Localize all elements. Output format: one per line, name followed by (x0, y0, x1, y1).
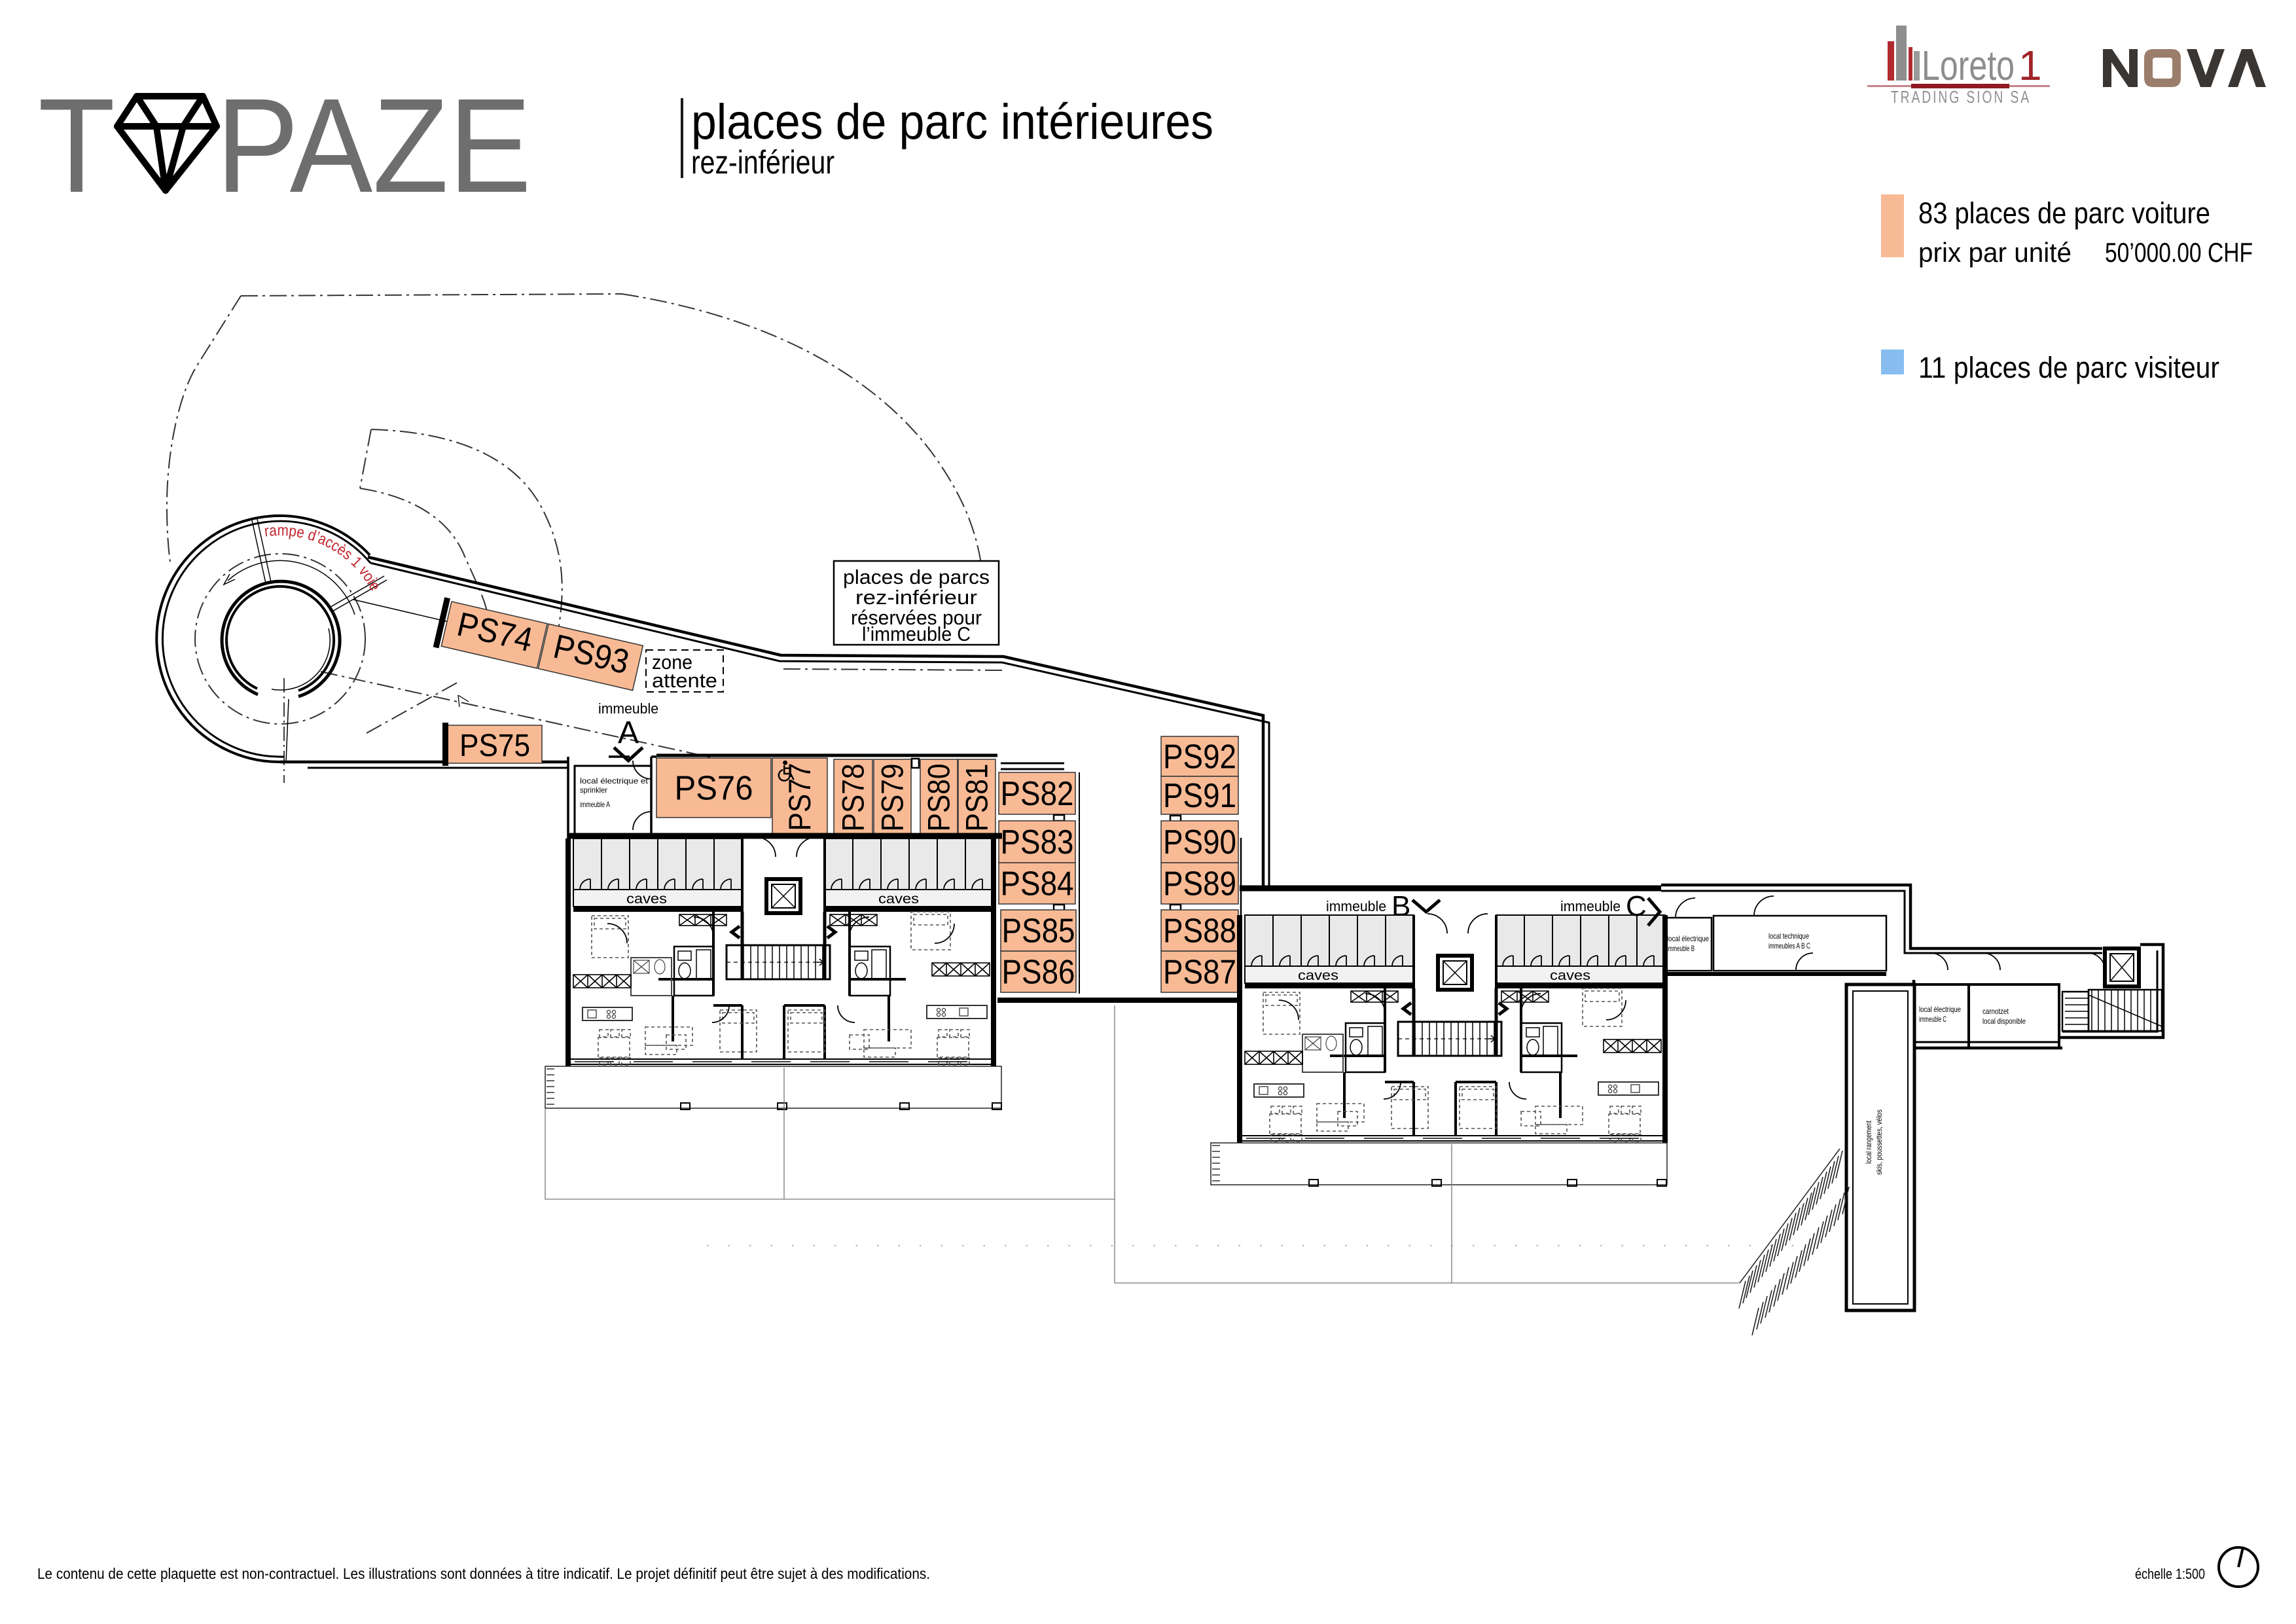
svg-text:échelle 1:500: échelle 1:500 (2135, 1566, 2205, 1582)
svg-text:prix par unité: prix par unité (1918, 237, 2072, 268)
svg-text:immeuble A: immeuble A (580, 800, 610, 809)
svg-text:B: B (1391, 890, 1410, 922)
svg-text:local technique: local technique (1768, 931, 1809, 941)
svg-text:caves: caves (626, 892, 667, 907)
svg-text:immeuble: immeuble (1560, 898, 1621, 914)
svg-text:skis, poussettes, vélos: skis, poussettes, vélos (1874, 1110, 1884, 1175)
svg-text:PS90: PS90 (1163, 823, 1236, 861)
svg-text:places de parc intérieures: places de parc intérieures (691, 94, 1213, 150)
svg-text:PS82: PS82 (1001, 775, 1074, 813)
svg-text:l’immeuble C: l’immeuble C (862, 623, 971, 645)
svg-text:local électrique et: local électrique et (580, 776, 649, 785)
svg-text:PS80: PS80 (922, 764, 956, 832)
svg-text:immeubles A B C: immeubles A B C (1768, 941, 1810, 950)
svg-text:local électrique: local électrique (1667, 934, 1709, 943)
svg-text:PS84: PS84 (1001, 865, 1074, 903)
svg-text:PS81: PS81 (960, 764, 994, 832)
svg-text:local rangement: local rangement (1864, 1120, 1873, 1164)
svg-text:83 places de parc voiture: 83 places de parc voiture (1918, 196, 2210, 230)
svg-text:PS91: PS91 (1163, 777, 1236, 815)
svg-text:PAZE: PAZE (216, 71, 531, 221)
svg-text:caves: caves (1298, 968, 1338, 983)
svg-text:immeuble: immeuble (1326, 898, 1386, 914)
svg-text:rez-inférieur: rez-inférieur (691, 144, 834, 181)
svg-text:C: C (1626, 890, 1647, 922)
svg-text:attente: attente (652, 669, 717, 692)
svg-text:A: A (618, 715, 639, 750)
svg-text:PS87: PS87 (1163, 954, 1236, 992)
svg-text:PS76: PS76 (675, 770, 753, 808)
svg-text:local électrique: local électrique (1919, 1005, 1961, 1014)
svg-text:PS79: PS79 (875, 764, 910, 832)
svg-text:PS92: PS92 (1163, 738, 1236, 776)
svg-text:TRADING SION SA: TRADING SION SA (1891, 87, 2031, 107)
svg-text:local disponible: local disponible (1982, 1017, 2026, 1026)
svg-text:immeuble: immeuble (598, 700, 658, 717)
svg-text:PS85: PS85 (1002, 912, 1075, 950)
svg-text:PS75: PS75 (459, 729, 530, 763)
svg-text:50’000.00 CHF: 50’000.00 CHF (2105, 237, 2253, 268)
svg-text:Loreto: Loreto (1922, 42, 2015, 89)
svg-text:immeuble C: immeuble C (1919, 1015, 1946, 1024)
svg-text:rez-inférieur: rez-inférieur (855, 586, 977, 609)
svg-text:carnotzet: carnotzet (1982, 1007, 2009, 1016)
svg-text:Le contenu de cette plaquette: Le contenu de cette plaquette est non-co… (37, 1565, 930, 1582)
svg-text:sprinkler: sprinkler (580, 785, 607, 795)
svg-text:PS83: PS83 (1001, 823, 1074, 861)
svg-text:PS88: PS88 (1163, 912, 1236, 950)
svg-text:PS86: PS86 (1002, 954, 1075, 992)
svg-text:caves: caves (878, 892, 919, 907)
svg-text:PS89: PS89 (1163, 865, 1236, 903)
svg-text:T: T (38, 71, 115, 221)
svg-text:11 places de parc visiteur: 11 places de parc visiteur (1918, 351, 2219, 384)
svg-text:immeuble B: immeuble B (1667, 944, 1695, 953)
svg-text:1: 1 (2018, 42, 2042, 89)
svg-text:PS78: PS78 (836, 764, 870, 832)
svg-text:places de parcs: places de parcs (843, 566, 990, 588)
svg-text:caves: caves (1550, 968, 1590, 983)
